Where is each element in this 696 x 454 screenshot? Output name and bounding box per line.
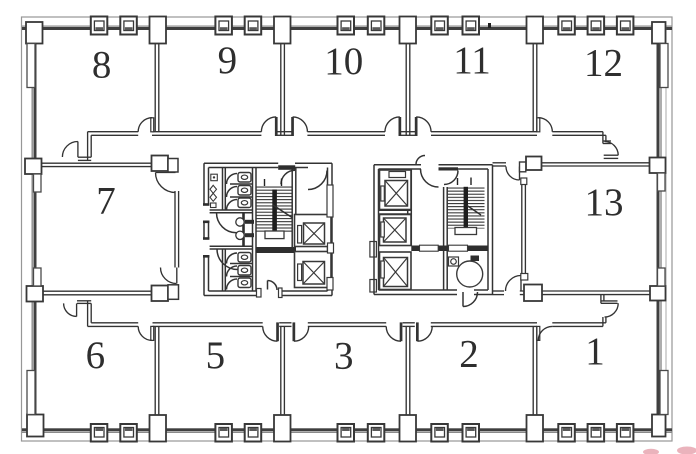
svg-text:3: 3: [334, 335, 354, 378]
svg-text:9: 9: [218, 39, 238, 82]
svg-text:7: 7: [96, 180, 116, 223]
svg-text:2: 2: [459, 333, 479, 376]
svg-text:1: 1: [585, 330, 605, 373]
svg-text:11: 11: [453, 39, 491, 82]
svg-text:13: 13: [585, 181, 624, 224]
svg-text:5: 5: [206, 334, 226, 377]
svg-text:10: 10: [324, 40, 363, 83]
svg-text:8: 8: [92, 43, 112, 86]
svg-text:6: 6: [86, 334, 106, 377]
svg-text:12: 12: [584, 42, 623, 85]
